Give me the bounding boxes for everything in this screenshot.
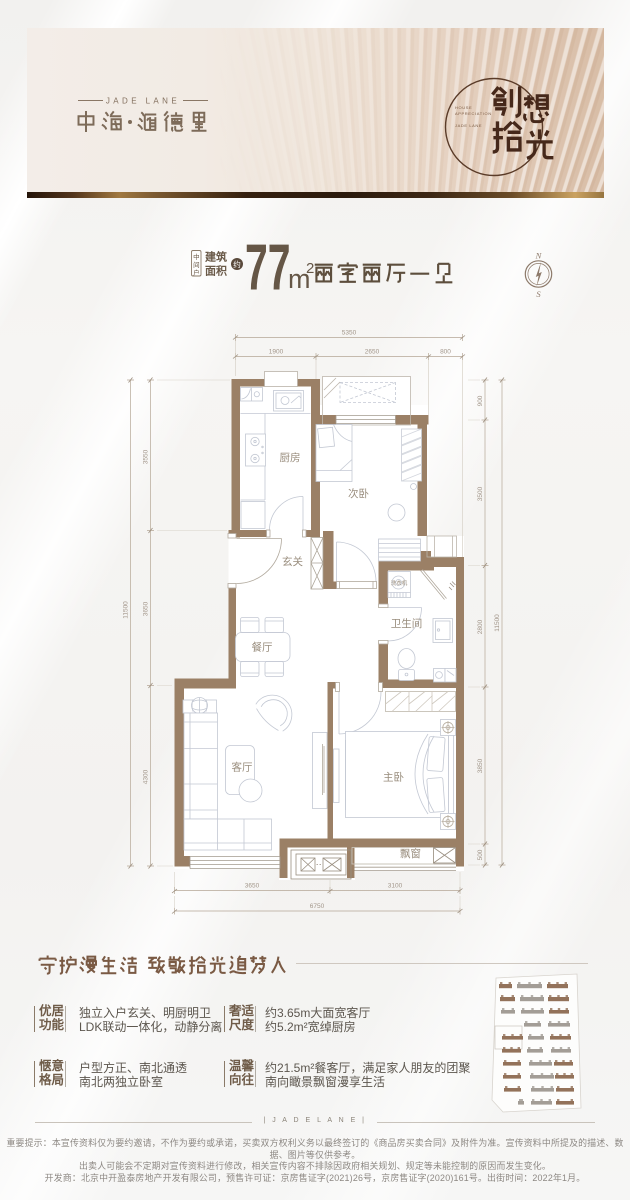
svg-text:5350: 5350 xyxy=(342,330,357,337)
svg-text:S: S xyxy=(536,289,541,299)
svg-text:4300: 4300 xyxy=(143,769,150,784)
svg-text:2650: 2650 xyxy=(365,349,380,356)
svg-text:2: 2 xyxy=(306,260,314,277)
svg-text:900: 900 xyxy=(477,395,484,406)
svg-text:JADE LANE: JADE LANE xyxy=(455,123,482,128)
svg-text:约: 约 xyxy=(233,259,241,269)
svg-text:11500: 11500 xyxy=(123,601,130,619)
svg-text:间: 间 xyxy=(193,261,200,269)
svg-text:800: 800 xyxy=(440,349,451,356)
svg-text:户: 户 xyxy=(193,268,200,277)
svg-text:餐厅: 餐厅 xyxy=(252,641,273,654)
svg-text:中: 中 xyxy=(193,252,200,261)
svg-text:3550: 3550 xyxy=(143,449,150,464)
svg-text:3650: 3650 xyxy=(245,883,260,890)
svg-text:主卧: 主卧 xyxy=(383,771,404,784)
svg-text:500: 500 xyxy=(477,849,484,860)
svg-text:HOUSE: HOUSE xyxy=(455,105,472,110)
svg-text:N: N xyxy=(535,251,543,261)
svg-text:77: 77 xyxy=(245,231,291,304)
svg-text:APPRECIATION: APPRECIATION xyxy=(455,111,492,116)
svg-text:3650: 3650 xyxy=(143,601,150,616)
svg-text:建筑: 建筑 xyxy=(205,250,227,264)
svg-text:次卧: 次卧 xyxy=(348,487,369,500)
svg-text:3100: 3100 xyxy=(388,883,403,890)
svg-text:1900: 1900 xyxy=(269,349,284,356)
svg-text:厨房: 厨房 xyxy=(280,451,301,464)
svg-text:3850: 3850 xyxy=(477,758,484,773)
svg-text:JADE LANE: JADE LANE xyxy=(106,97,180,106)
svg-text:玄关: 玄关 xyxy=(282,555,303,568)
svg-text:6750: 6750 xyxy=(310,903,325,910)
svg-text:2800: 2800 xyxy=(477,619,484,634)
svg-text:面积: 面积 xyxy=(205,264,227,278)
svg-text:3500: 3500 xyxy=(477,486,484,501)
svg-text:11500: 11500 xyxy=(494,614,501,632)
svg-text:洗衣机: 洗衣机 xyxy=(391,579,408,587)
svg-text:客厅: 客厅 xyxy=(232,761,253,774)
svg-text:卫生间: 卫生间 xyxy=(391,617,423,630)
svg-text:飘窗: 飘窗 xyxy=(400,847,421,860)
